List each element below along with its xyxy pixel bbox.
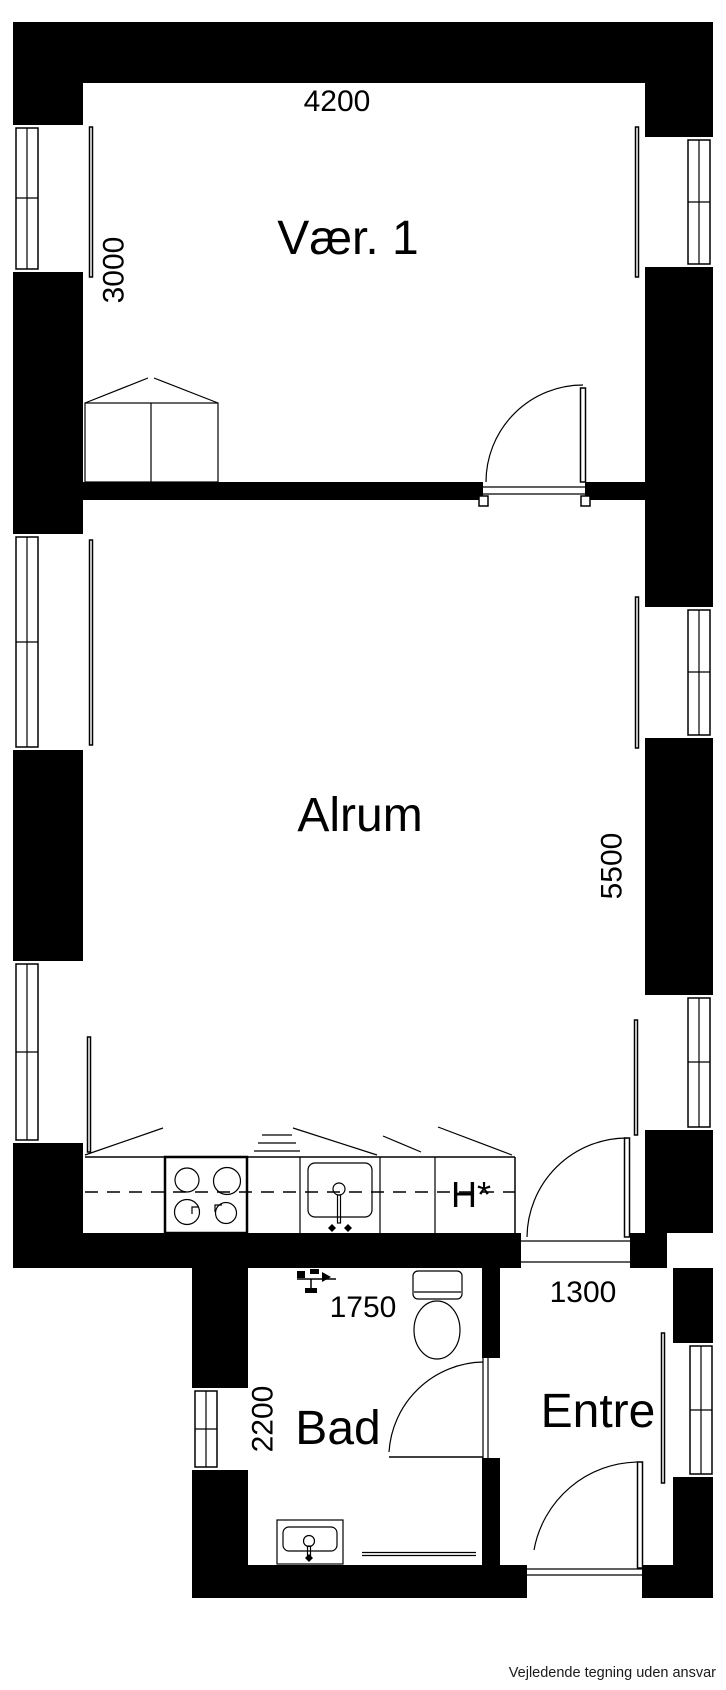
wall-segment — [13, 1233, 521, 1268]
radiator-icon — [88, 1037, 91, 1152]
room-label-entre: Entre — [541, 1385, 656, 1438]
dim-bad-depth: 2200 — [247, 1386, 280, 1453]
window-icon — [13, 534, 83, 750]
radiator-icon — [90, 127, 93, 277]
room-label-alrum: Alrum — [297, 789, 422, 842]
wardrobe-icon — [85, 378, 218, 482]
stove-icon — [165, 1157, 247, 1233]
shower-mixer-icon — [297, 1269, 336, 1293]
window-icon — [13, 125, 83, 272]
bathroom-sink-icon — [277, 1520, 343, 1564]
window-icon — [645, 995, 713, 1130]
wall-segment — [585, 482, 645, 500]
wall-segment — [192, 1565, 527, 1598]
shower-rail-icon — [362, 1553, 476, 1556]
dim-vaer1-width: 4200 — [304, 85, 371, 118]
radiator-icon — [635, 1020, 638, 1135]
wall-segment — [630, 1233, 667, 1268]
cooker-hood-icon — [254, 1135, 300, 1151]
kitchen-cabinet-label: H* — [451, 1174, 491, 1215]
dim-vaer1-depth: 3000 — [98, 237, 131, 304]
door-swing-icon — [479, 385, 590, 506]
window-icon — [645, 607, 713, 738]
dim-bad-width: 1750 — [330, 1291, 397, 1324]
radiator-icon — [636, 597, 639, 748]
door-swing-icon — [389, 1358, 488, 1458]
room-label-vaer1: Vær. 1 — [277, 212, 418, 265]
door-swing-icon — [521, 1138, 630, 1262]
radiator-icon — [90, 540, 93, 745]
labels: 4200 3000 Vær. 1 Alrum 5500 H* 1750 2200… — [98, 85, 717, 1681]
kitchen-sink-icon — [308, 1163, 372, 1232]
floor-plan-drawing: 4200 3000 Vær. 1 Alrum 5500 H* 1750 2200… — [0, 0, 726, 1690]
wall-segment — [83, 482, 483, 500]
floor-plan-page: 4200 3000 Vær. 1 Alrum 5500 H* 1750 2200… — [0, 0, 726, 1690]
wall-segment — [482, 1458, 500, 1565]
room-label-bad: Bad — [295, 1402, 380, 1455]
radiator-icon — [636, 127, 639, 277]
door-swing-icon — [527, 1462, 643, 1575]
window-icon — [13, 961, 83, 1143]
wall-segment — [13, 22, 713, 83]
disclaimer-text: Vejledende tegning uden ansvar — [509, 1665, 716, 1681]
window-icon — [673, 1343, 713, 1477]
wall-segment — [482, 1268, 500, 1358]
window-icon — [645, 137, 713, 267]
dim-entre-width: 1300 — [550, 1276, 617, 1309]
window-icon — [192, 1388, 248, 1470]
radiator-icon — [662, 1333, 665, 1483]
toilet-icon — [413, 1271, 462, 1359]
dim-alrum-depth: 5500 — [596, 833, 629, 900]
